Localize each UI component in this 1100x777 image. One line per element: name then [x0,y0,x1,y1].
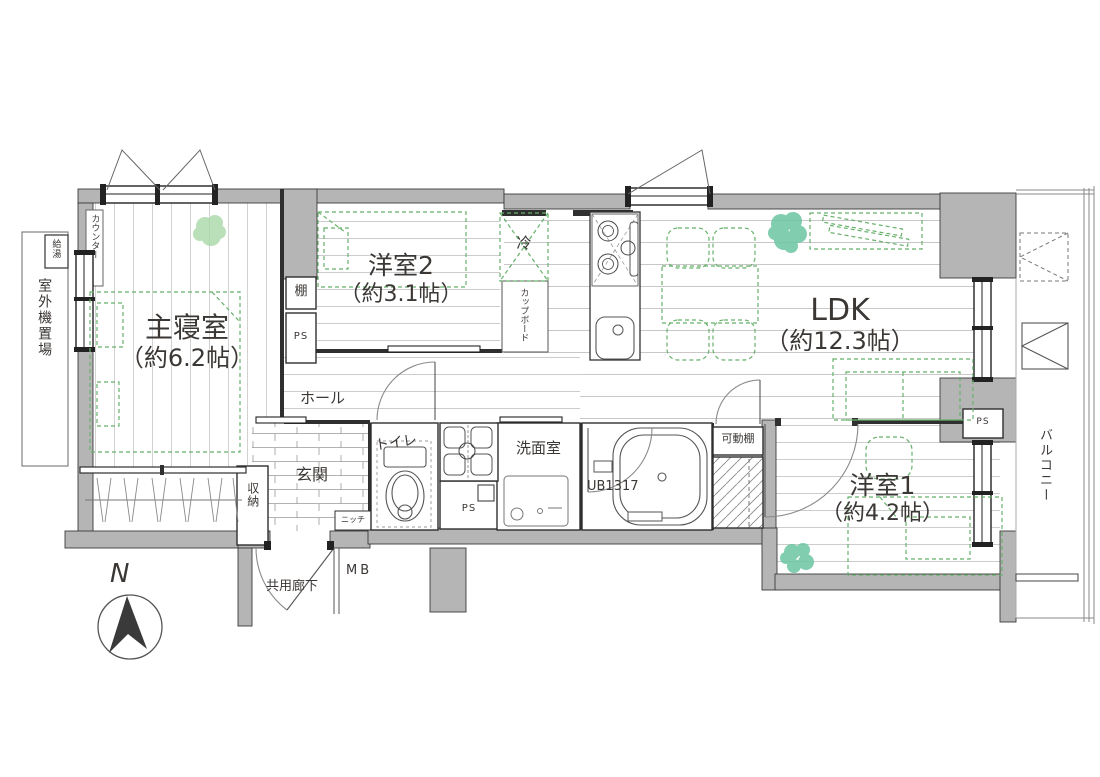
sliding-door-washroom [500,417,562,422]
floor-plan-drawing [0,0,1100,777]
label-meter-box: MB [346,564,372,579]
room-size-master-bedroom: （約6.2帖） [92,345,282,373]
label-ps-washroom: PS [440,503,498,515]
label-outdoor-unit-area: 室外機置場 [36,278,52,418]
wall-bottom-left [65,531,251,548]
label-ps-east: PS [963,417,1003,427]
wall-bedroom-east [280,189,284,423]
floor-plan-canvas: 主寝室 （約6.2帖） 洋室2 （約3.1帖） LDK （約12.3帖） 洋室1… [0,0,1100,777]
wall-column-bedroom [283,189,317,279]
wall-west-room1 [762,420,776,530]
window-ldk-top [625,150,713,207]
room-label-western-room2: 洋室2 [317,252,485,281]
vanity-box [440,423,498,481]
label-balcony: バルコニー [1036,428,1051,503]
label-north: N [110,560,129,590]
label-cupboard: カップボード [518,288,528,342]
room-label-ldk: LDK [750,294,930,329]
wall-mb-right [430,548,466,612]
window-ldk-right [972,277,993,382]
label-common-corridor: 共用廊下 [266,580,318,595]
door-post [852,418,858,426]
label-refrigerator: 冷 [502,235,546,252]
wall-top-kitchen [504,194,630,209]
wall-corridor-left [238,548,252,626]
label-hall: ホール [300,390,345,407]
label-entrance: 玄関 [296,466,328,484]
label-shelf: 棚 [286,285,316,300]
label-washroom: 洗面室 [497,440,580,457]
room-size-ldk: （約12.3帖） [740,328,940,356]
mb-partition [334,548,339,614]
wall-block-topright [940,193,1016,278]
ps-notch [478,485,494,501]
shelf-closet [713,457,763,528]
wall-bottom-room1 [775,574,1005,590]
label-water-heater: 給湯 [50,239,60,259]
sliding-door-bedroom [256,417,306,423]
floors [93,203,1000,625]
label-counter: カウンター [89,214,99,259]
bedroom-closet [80,465,246,522]
wall-top-ldk [708,194,940,209]
wall-entry-right [330,531,370,548]
label-niche: ニッチ [335,515,371,524]
door-post [775,418,781,426]
label-storage: 収納 [245,482,259,508]
north-arrow [98,595,162,659]
label-unit-bath: UB1317 [587,480,639,495]
balcony-hatch-solid [1022,323,1068,369]
label-ps-west: PS [286,331,316,343]
window-room1-right [972,440,993,547]
sliding-door-room2 [388,346,480,352]
room-label-master-bedroom: 主寝室 [92,312,282,344]
room-size-western-room1: （約4.2帖） [790,501,975,526]
room-label-western-room1: 洋室1 [795,472,970,501]
label-movable-shelf: 可動棚 [713,433,763,446]
room-size-western-room2: （約3.1帖） [307,282,495,307]
window-master-top [100,150,218,205]
balcony-partition [1016,574,1078,581]
wall-right-bottom [1000,531,1016,622]
kitchen [590,212,640,360]
balcony-hatch-dashed [1020,233,1068,281]
